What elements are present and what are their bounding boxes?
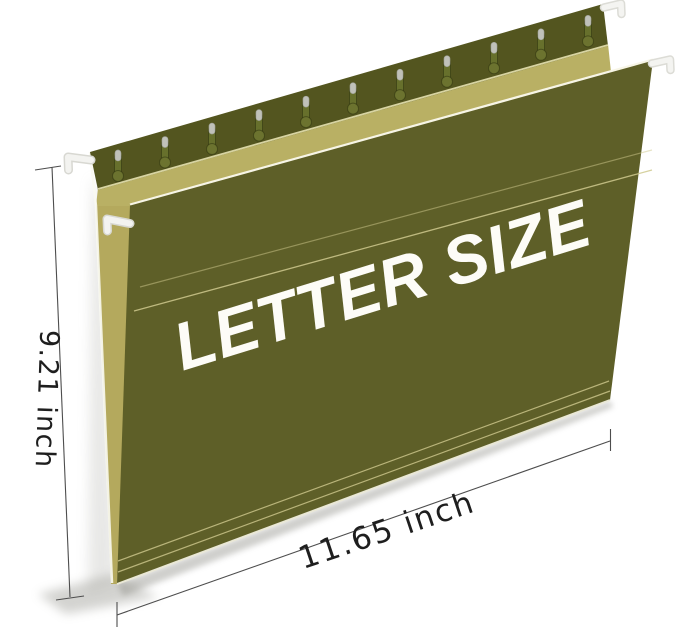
height-dimension: 9.21 inch [29, 166, 84, 600]
height-dimension-tick-top [35, 166, 61, 170]
hanger-hook-back-right [604, 4, 622, 15]
hanger-hook-back-left [68, 157, 91, 170]
hanger-hook-front-right [652, 60, 671, 71]
product-image: LETTER SIZE 9.21 inch 11.65 inch [0, 0, 679, 627]
folder-diagram: LETTER SIZE 9.21 inch 11.65 inch [0, 0, 679, 627]
height-label: 9.21 inch [29, 329, 65, 469]
